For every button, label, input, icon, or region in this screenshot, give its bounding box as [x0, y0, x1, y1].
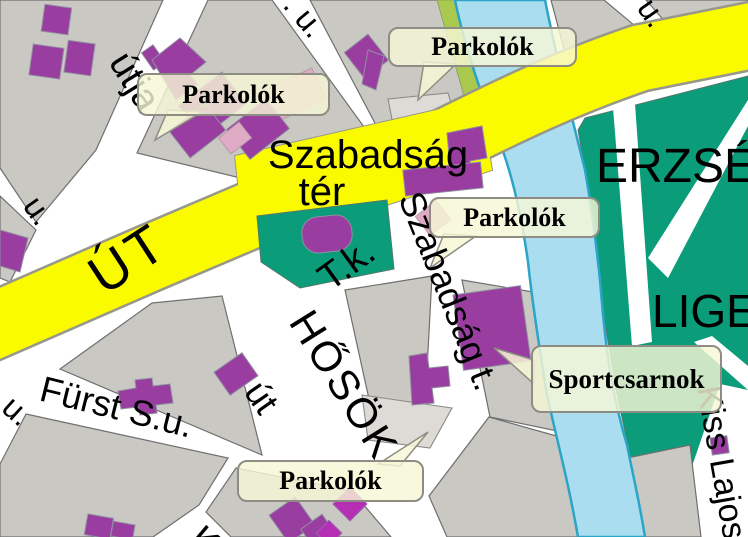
label-liget: LIGE	[652, 285, 748, 337]
tooltip-sportcsarnok[interactable]: Sportcsarnok	[531, 345, 722, 413]
building	[64, 40, 95, 75]
building	[41, 4, 71, 34]
tooltip-parkolok-bottom[interactable]: Parkolók	[237, 460, 424, 502]
tooltip-label: Parkolók	[431, 32, 534, 62]
building	[84, 514, 113, 537]
tooltip-label: Parkolók	[182, 80, 285, 110]
tooltip-parkolok-left[interactable]: Parkolók	[137, 73, 330, 116]
tooltip-parkolok-top[interactable]: Parkolók	[388, 27, 577, 67]
map-canvas[interactable]: Szabadság tér ÚT ERZSÉ LIGE útja . u. u.…	[0, 0, 748, 537]
label-szabadsag-ter-line2: tér	[299, 170, 346, 214]
tooltip-label: Parkolók	[279, 466, 382, 496]
building	[29, 44, 64, 79]
tooltip-label: Sportcsarnok	[548, 364, 704, 395]
label-erzsebet: ERZSÉ	[596, 140, 748, 193]
tooltip-parkolok-center[interactable]: Parkolók	[429, 197, 600, 238]
tooltip-label: Parkolók	[463, 203, 566, 233]
map-graphics: Szabadság tér ÚT ERZSÉ LIGE útja . u. u.…	[0, 0, 748, 537]
